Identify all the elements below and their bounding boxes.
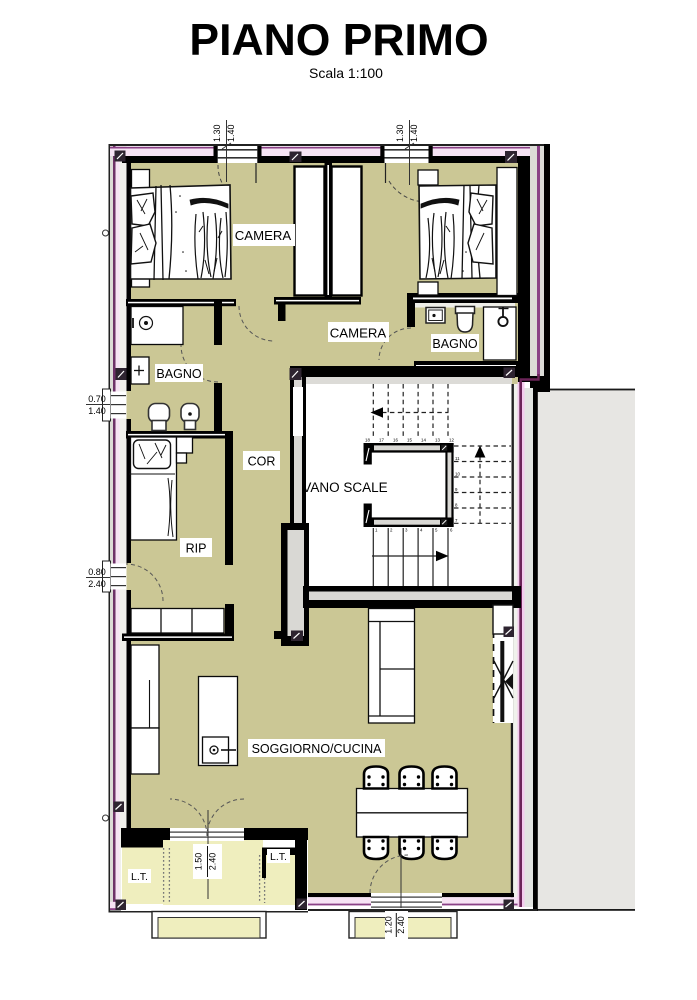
svg-text:2.40: 2.40 (208, 853, 218, 871)
svg-text:Scala 1:100: Scala 1:100 (309, 65, 383, 81)
svg-text:12: 12 (449, 438, 454, 443)
svg-text:16: 16 (393, 438, 398, 443)
svg-text:15: 15 (407, 438, 412, 443)
svg-text:RIP: RIP (186, 542, 207, 556)
svg-text:1.50: 1.50 (194, 853, 204, 871)
svg-text:0.70: 0.70 (88, 394, 106, 404)
svg-text:COR: COR (248, 455, 276, 469)
svg-text:BAGNO: BAGNO (156, 367, 201, 381)
svg-text:13: 13 (435, 438, 440, 443)
svg-text:11: 11 (455, 456, 460, 461)
svg-text:2.40: 2.40 (88, 579, 106, 589)
svg-text:10: 10 (455, 472, 460, 477)
svg-text:1.30: 1.30 (395, 124, 405, 142)
svg-text:18: 18 (365, 438, 370, 443)
svg-text:L.T.: L.T. (270, 851, 287, 863)
svg-text:1.40: 1.40 (409, 124, 419, 142)
svg-text:BAGNO: BAGNO (432, 337, 477, 351)
svg-text:1.30: 1.30 (212, 124, 222, 142)
svg-text:CAMERA: CAMERA (235, 228, 292, 243)
svg-text:PIANO PRIMO: PIANO PRIMO (189, 16, 488, 65)
svg-text:17: 17 (379, 438, 384, 443)
svg-text:SOGGIORNO/CUCINA: SOGGIORNO/CUCINA (252, 742, 383, 756)
svg-text:CAMERA: CAMERA (330, 326, 387, 341)
svg-text:2.40: 2.40 (396, 916, 406, 934)
svg-text:0.80: 0.80 (88, 567, 106, 577)
svg-text:1.20: 1.20 (384, 916, 394, 934)
svg-text:L.T.: L.T. (131, 871, 148, 883)
svg-text:14: 14 (421, 438, 426, 443)
svg-text:1.40: 1.40 (88, 406, 106, 416)
svg-text:VANO SCALE: VANO SCALE (302, 480, 387, 495)
svg-text:1.40: 1.40 (226, 124, 236, 142)
